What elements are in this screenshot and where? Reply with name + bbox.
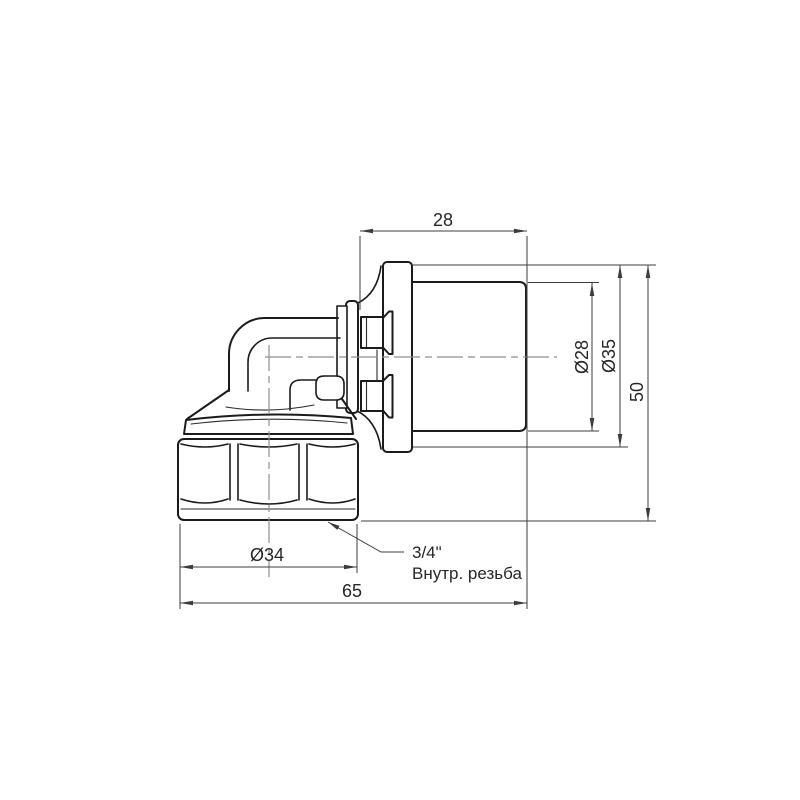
- press-indicator-clip-lower: [361, 375, 393, 418]
- dimension-top-width: 28: [360, 210, 527, 233]
- dim-label-nut-od: Ø34: [250, 545, 284, 565]
- clip-flare: [383, 375, 393, 418]
- clip-flare: [383, 312, 393, 355]
- dim-label-height: 50: [627, 382, 647, 402]
- dim-label-pipe-od: Ø28: [572, 340, 592, 374]
- transition-bottom: [357, 411, 381, 449]
- cone-left-slant: [187, 390, 229, 419]
- dimension-sleeve-od: Ø35: [599, 265, 622, 447]
- callout-size-label: 3/4": [412, 543, 442, 562]
- hex-nut: [178, 439, 358, 520]
- arrowhead-icon: [180, 601, 193, 606]
- nut-body: [178, 439, 358, 520]
- elbow-boss: [316, 376, 344, 400]
- arrowhead-icon: [514, 229, 527, 234]
- technical-drawing-canvas: 28 Ø28 Ø35 50 Ø34 65 3/4" Внутр. резьба: [0, 0, 800, 800]
- dimension-pipe-od: Ø28: [572, 283, 594, 431]
- dim-label-overall-length: 65: [342, 581, 362, 601]
- arrowhead-icon: [344, 565, 357, 570]
- leader-arrowhead-icon: [328, 522, 340, 530]
- cone-intersection-curve: [226, 405, 314, 410]
- arrowhead-icon: [590, 418, 595, 431]
- press-indicator-clip-upper: [361, 312, 393, 355]
- arrowhead-icon: [514, 601, 527, 606]
- arrowhead-icon: [646, 265, 651, 278]
- arrowhead-icon: [180, 565, 193, 570]
- arrowhead-icon: [618, 265, 623, 278]
- technical-drawing-page: 28 Ø28 Ø35 50 Ø34 65 3/4" Внутр. резьба: [0, 0, 800, 800]
- callout-thread-label: Внутр. резьба: [412, 564, 522, 583]
- clip-body: [361, 381, 383, 411]
- dimension-height: 50: [627, 265, 650, 521]
- elbow-body: [229, 318, 344, 410]
- dim-label-sleeve-od: Ø35: [599, 339, 619, 373]
- dim-label-top-width: 28: [433, 210, 453, 230]
- dimension-overall-length: 65: [180, 581, 527, 605]
- arrowhead-icon: [590, 283, 595, 296]
- clip-body: [361, 317, 383, 348]
- leader-line: [328, 522, 404, 552]
- arrowhead-icon: [360, 229, 373, 234]
- fitting-body: [178, 262, 526, 520]
- transition-top: [358, 266, 381, 303]
- arrowhead-icon: [618, 434, 623, 447]
- arrowhead-icon: [646, 508, 651, 521]
